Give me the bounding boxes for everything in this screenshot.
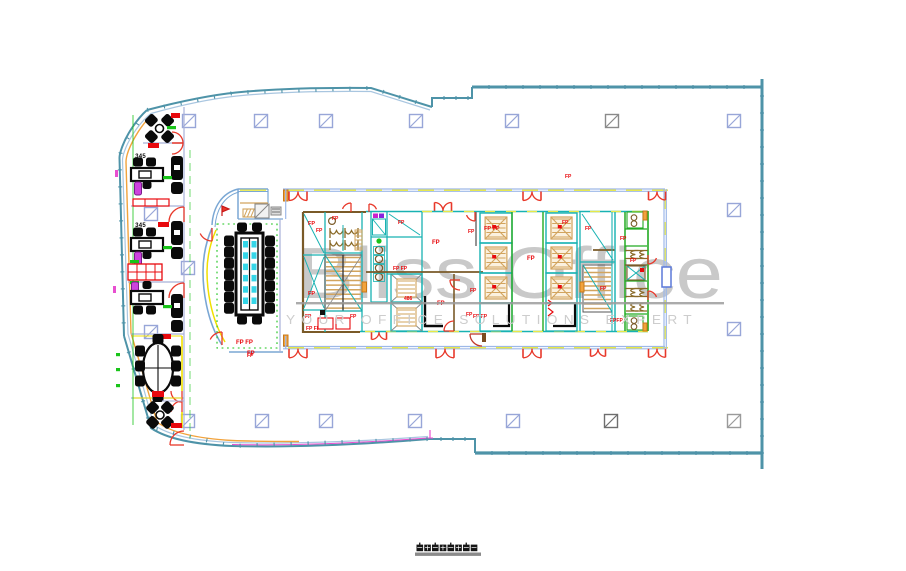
svg-text:FP: FP (316, 228, 323, 234)
svg-text:FP: FP (308, 291, 315, 297)
svg-text:FP: FP (562, 220, 569, 226)
svg-text:FP FP: FP FP (484, 226, 500, 232)
svg-text:345: 345 (135, 153, 146, 160)
svg-text:FP: FP (600, 286, 607, 292)
svg-text:FP: FP (585, 226, 592, 232)
svg-text:YOUR OFFICE SOLUTIONS EXPERT: YOUR OFFICE SOLUTIONS EXPERT (286, 312, 698, 327)
svg-text:FP: FP (332, 216, 339, 222)
svg-text:FP: FP (620, 236, 627, 242)
svg-text:FP: FP (565, 174, 572, 180)
svg-text:FP FP: FP FP (236, 340, 253, 346)
svg-text:FP: FP (527, 256, 535, 262)
svg-text:FP: FP (432, 240, 440, 246)
svg-text:FP: FP (398, 220, 405, 226)
svg-text:486: 486 (404, 296, 413, 302)
svg-text:FP: FP (308, 221, 315, 227)
svg-text:FP: FP (470, 288, 477, 294)
svg-text:FP: FP (468, 229, 475, 235)
svg-text:FP: FP (247, 353, 254, 359)
svg-text:FP: FP (630, 258, 637, 264)
